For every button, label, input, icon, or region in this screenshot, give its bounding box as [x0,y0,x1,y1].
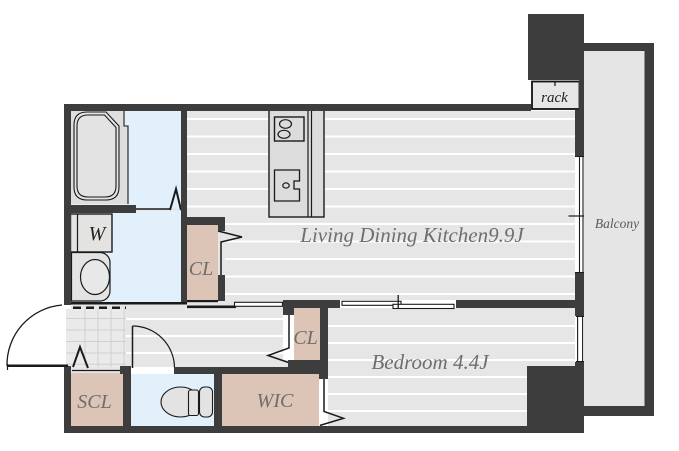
svg-text:rack: rack [541,90,568,106]
svg-text:Bedroom 4.4J: Bedroom 4.4J [371,350,490,374]
svg-text:W: W [89,223,108,245]
svg-text:SCL: SCL [77,391,111,413]
svg-text:Balcony: Balcony [595,216,639,231]
svg-text:WIC: WIC [257,390,294,412]
svg-text:CL: CL [293,327,317,349]
svg-text:Living Dining Kitchen9.9J: Living Dining Kitchen9.9J [299,223,525,247]
svg-text:CL: CL [189,258,213,280]
